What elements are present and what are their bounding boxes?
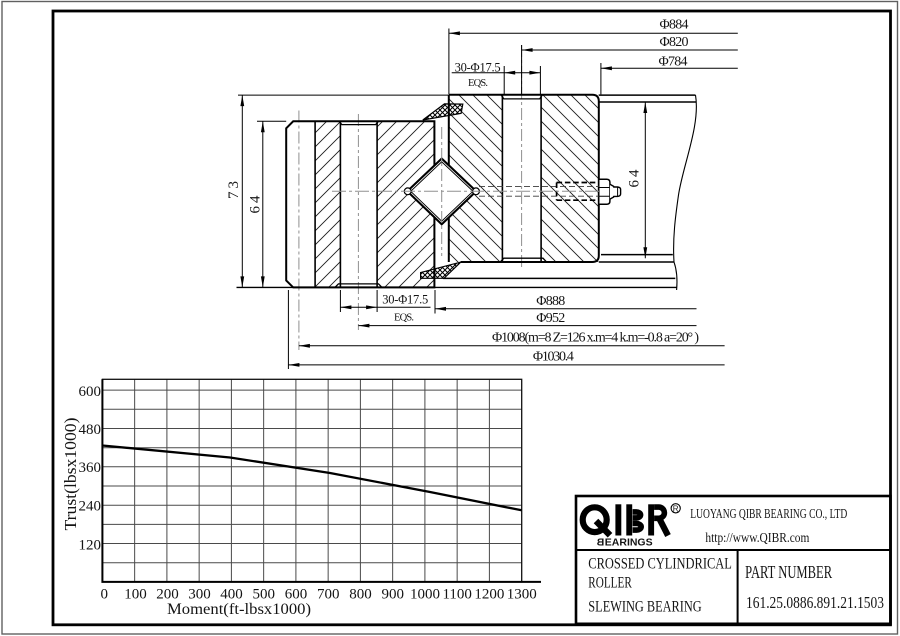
svg-text:1200: 1200 <box>474 586 504 602</box>
svg-text:360: 360 <box>79 460 102 476</box>
svg-text:Φ884: Φ884 <box>660 18 689 33</box>
svg-text:600: 600 <box>79 384 102 400</box>
svg-text:EQS.: EQS. <box>468 78 488 89</box>
svg-text:120: 120 <box>79 537 102 553</box>
svg-text:1300: 1300 <box>507 586 537 602</box>
svg-text:CROSSED CYLINDRICAL: CROSSED CYLINDRICAL <box>588 556 732 573</box>
svg-text:Φ952: Φ952 <box>536 311 565 326</box>
svg-text:0: 0 <box>100 586 108 602</box>
svg-text:700: 700 <box>317 586 340 602</box>
svg-text:1100: 1100 <box>442 586 471 602</box>
svg-text:800: 800 <box>349 586 372 602</box>
svg-text:Φ888: Φ888 <box>536 294 565 309</box>
svg-text:ROLLER: ROLLER <box>588 575 632 592</box>
svg-text:480: 480 <box>79 422 102 438</box>
svg-text:EARINGS: EARINGS <box>605 537 653 549</box>
svg-text:1000: 1000 <box>410 586 440 602</box>
svg-text:240: 240 <box>79 498 102 514</box>
svg-text:Φ784: Φ784 <box>659 55 688 70</box>
svg-text:100: 100 <box>124 586 147 602</box>
svg-text:Trust(lbsx1000): Trust(lbsx1000) <box>61 418 80 531</box>
svg-text:B: B <box>596 537 604 549</box>
svg-text:R: R <box>673 504 679 513</box>
svg-text:600: 600 <box>285 586 308 602</box>
svg-text:161.25.0886.891.21.1503: 161.25.0886.891.21.1503 <box>746 593 884 612</box>
svg-text:PART NUMBER: PART NUMBER <box>745 562 832 582</box>
svg-text:http://www.QIBR.com: http://www.QIBR.com <box>705 530 809 545</box>
svg-text:30-Φ17.5: 30-Φ17.5 <box>455 60 501 74</box>
svg-text:Φ1008(m=8 Z=126 x.m=4 k.m=-0.8: Φ1008(m=8 Z=126 x.m=4 k.m=-0.8 a=20° ) <box>492 330 699 345</box>
svg-text:30-Φ17.5: 30-Φ17.5 <box>382 293 428 307</box>
svg-text:500: 500 <box>253 586 276 602</box>
svg-text:400: 400 <box>220 586 243 602</box>
svg-text:200: 200 <box>156 586 179 602</box>
svg-text:Φ820: Φ820 <box>660 35 689 50</box>
svg-text:SLEWING BEARING: SLEWING BEARING <box>588 599 701 616</box>
svg-text:LUOYANG QIBR BEARING CO., LTD: LUOYANG QIBR BEARING CO., LTD <box>690 506 847 521</box>
svg-text:Φ1030.4: Φ1030.4 <box>533 349 574 364</box>
svg-text:Moment(ft-lbsx1000): Moment(ft-lbsx1000) <box>167 601 311 618</box>
svg-text:EQS.: EQS. <box>394 312 414 323</box>
svg-text:300: 300 <box>188 586 211 602</box>
svg-text:900: 900 <box>382 586 405 602</box>
